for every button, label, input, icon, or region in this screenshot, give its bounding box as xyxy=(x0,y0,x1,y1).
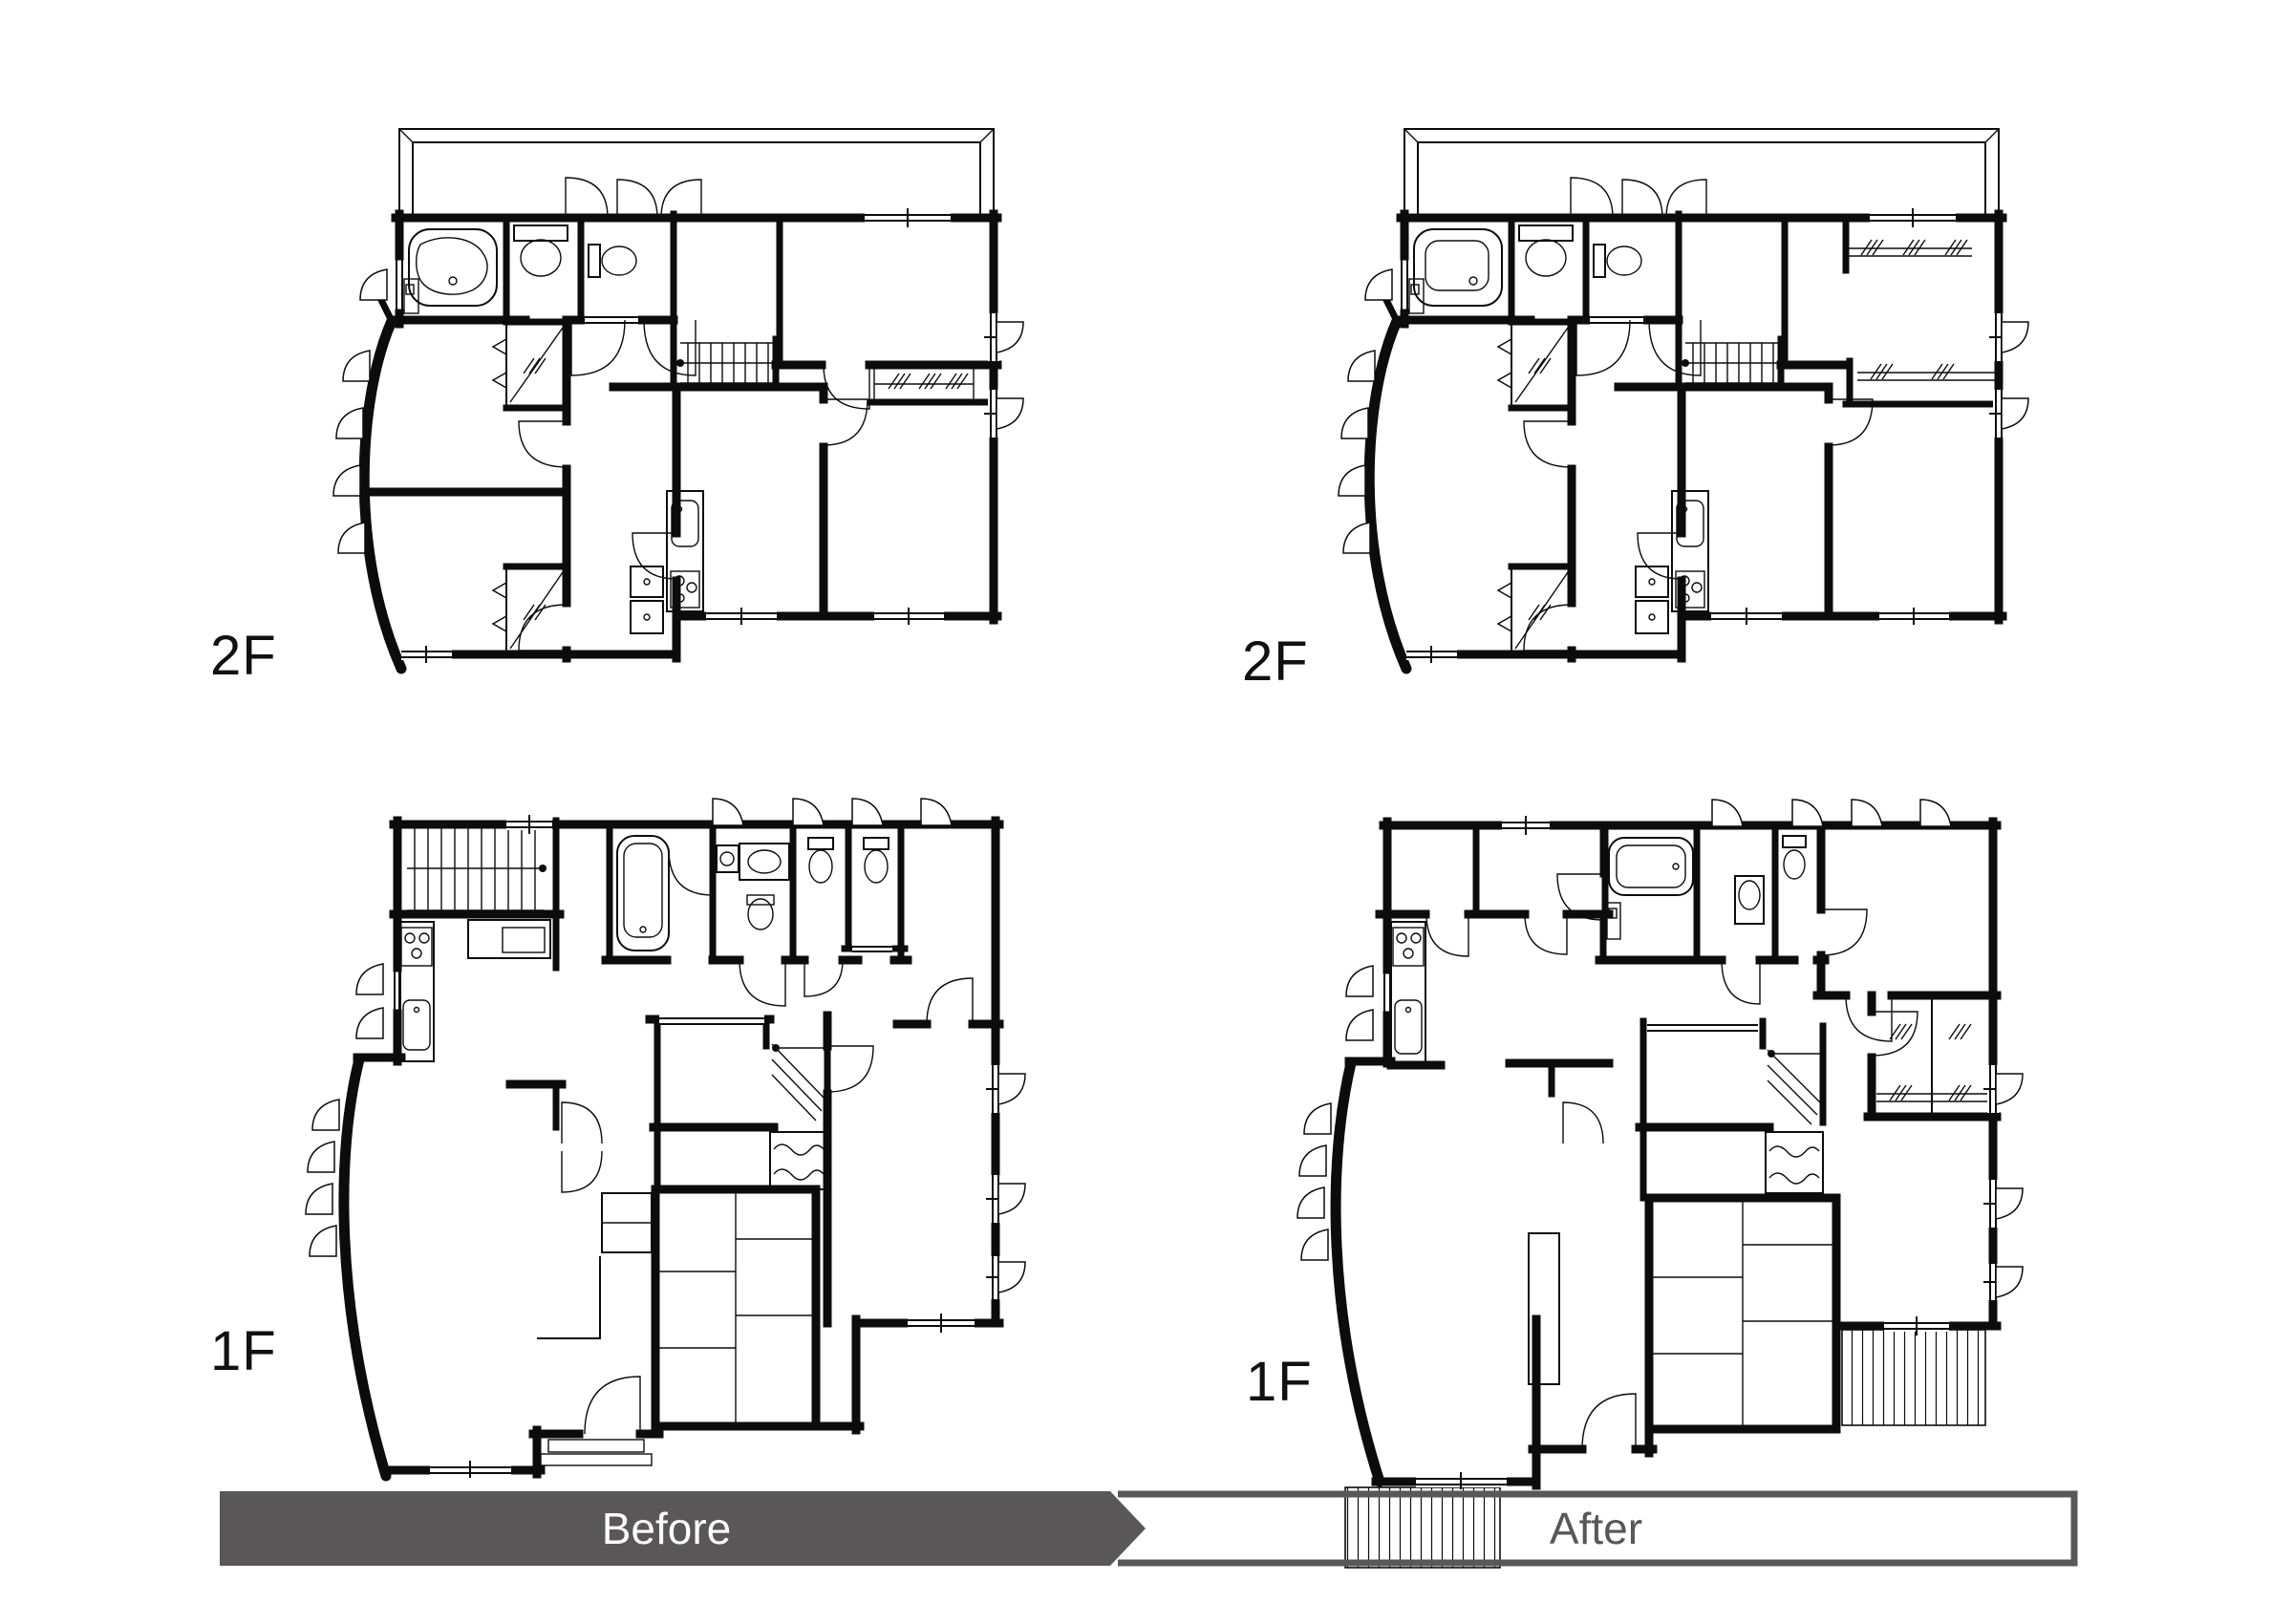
wood-floor-icon xyxy=(1766,1132,1823,1193)
floor-plan-1f-after xyxy=(1297,800,2023,1568)
windows xyxy=(1365,208,2028,663)
tatami-grid-icon xyxy=(655,1189,816,1426)
toilet-icon xyxy=(589,245,636,277)
sliding-door-icon xyxy=(1647,1021,1758,1031)
sliding-door-icon xyxy=(1590,314,1643,325)
vanity-sink-icon xyxy=(717,844,789,930)
stairs-icon xyxy=(407,826,546,910)
curved-wall xyxy=(306,1059,386,1476)
door-arcs xyxy=(562,849,973,1434)
closet-hanger-icon xyxy=(1876,998,1991,1117)
bathtub-icon xyxy=(617,836,669,951)
casement-window-icon xyxy=(343,351,370,381)
stove-icon xyxy=(401,928,432,966)
vanity-sink-icon xyxy=(514,225,568,276)
balcony xyxy=(399,129,994,218)
stove-icon xyxy=(1393,928,1424,966)
floor-label-1f-before: 1F xyxy=(210,1324,277,1379)
kitchen-counter xyxy=(399,920,550,1061)
page: 2F 2F 1F 1F Before After xyxy=(0,0,2293,1624)
toilet-icon xyxy=(1783,836,1806,879)
kitchen-counter xyxy=(1391,922,1425,1065)
floor-plan-2f-after xyxy=(1339,129,2028,669)
casement-window-icon xyxy=(338,523,365,553)
door-arcs xyxy=(1524,178,1873,651)
bathtub-icon xyxy=(404,229,497,313)
wood-floor-icon xyxy=(770,1132,827,1189)
balcony xyxy=(1404,129,1999,218)
bathtub-icon xyxy=(1409,229,1502,313)
floor-label-2f-after: 2F xyxy=(1242,634,1309,690)
toilet-icon xyxy=(1594,245,1641,277)
closet xyxy=(1498,322,1568,654)
stairs-icon xyxy=(676,343,776,383)
vanity-sink-icon xyxy=(1519,225,1573,276)
curved-wall xyxy=(1297,1063,1380,1482)
closet-hanger-icon xyxy=(1846,240,1995,380)
sliding-door-icon xyxy=(585,314,638,325)
floorplan-canvas xyxy=(0,0,2293,1624)
kitchen-sink-icon xyxy=(1395,1000,1422,1054)
casement-window-icon xyxy=(333,465,360,496)
walls xyxy=(363,214,997,658)
after-label: After xyxy=(1118,1506,2074,1550)
windows xyxy=(356,799,1025,1478)
floor-label-2f-before: 2F xyxy=(210,629,277,684)
floor-label-1f-after: 1F xyxy=(1246,1355,1313,1410)
stairs-down-icon xyxy=(772,1044,825,1121)
closet-hanger-icon xyxy=(874,368,974,400)
stairs-down-icon xyxy=(1768,1050,1821,1124)
curved-wall xyxy=(1339,294,1406,669)
bathtub-icon xyxy=(1607,838,1693,939)
floor-plan-1f-before xyxy=(306,799,1025,1478)
floor-plan-2f-before xyxy=(333,129,1023,669)
vanity-sink-icon xyxy=(1735,876,1764,924)
door-arcs xyxy=(519,178,869,651)
before-label: Before xyxy=(220,1506,1113,1550)
windows xyxy=(360,208,1023,663)
closet xyxy=(602,1193,652,1252)
walls xyxy=(357,821,999,1474)
kitchen-sink-icon xyxy=(403,1000,430,1050)
stairs-icon xyxy=(1682,343,1781,383)
casement-window-icon xyxy=(336,408,363,438)
walls xyxy=(1401,214,2003,658)
curved-wall xyxy=(333,294,401,669)
tatami-grid-icon xyxy=(1649,1198,1836,1429)
